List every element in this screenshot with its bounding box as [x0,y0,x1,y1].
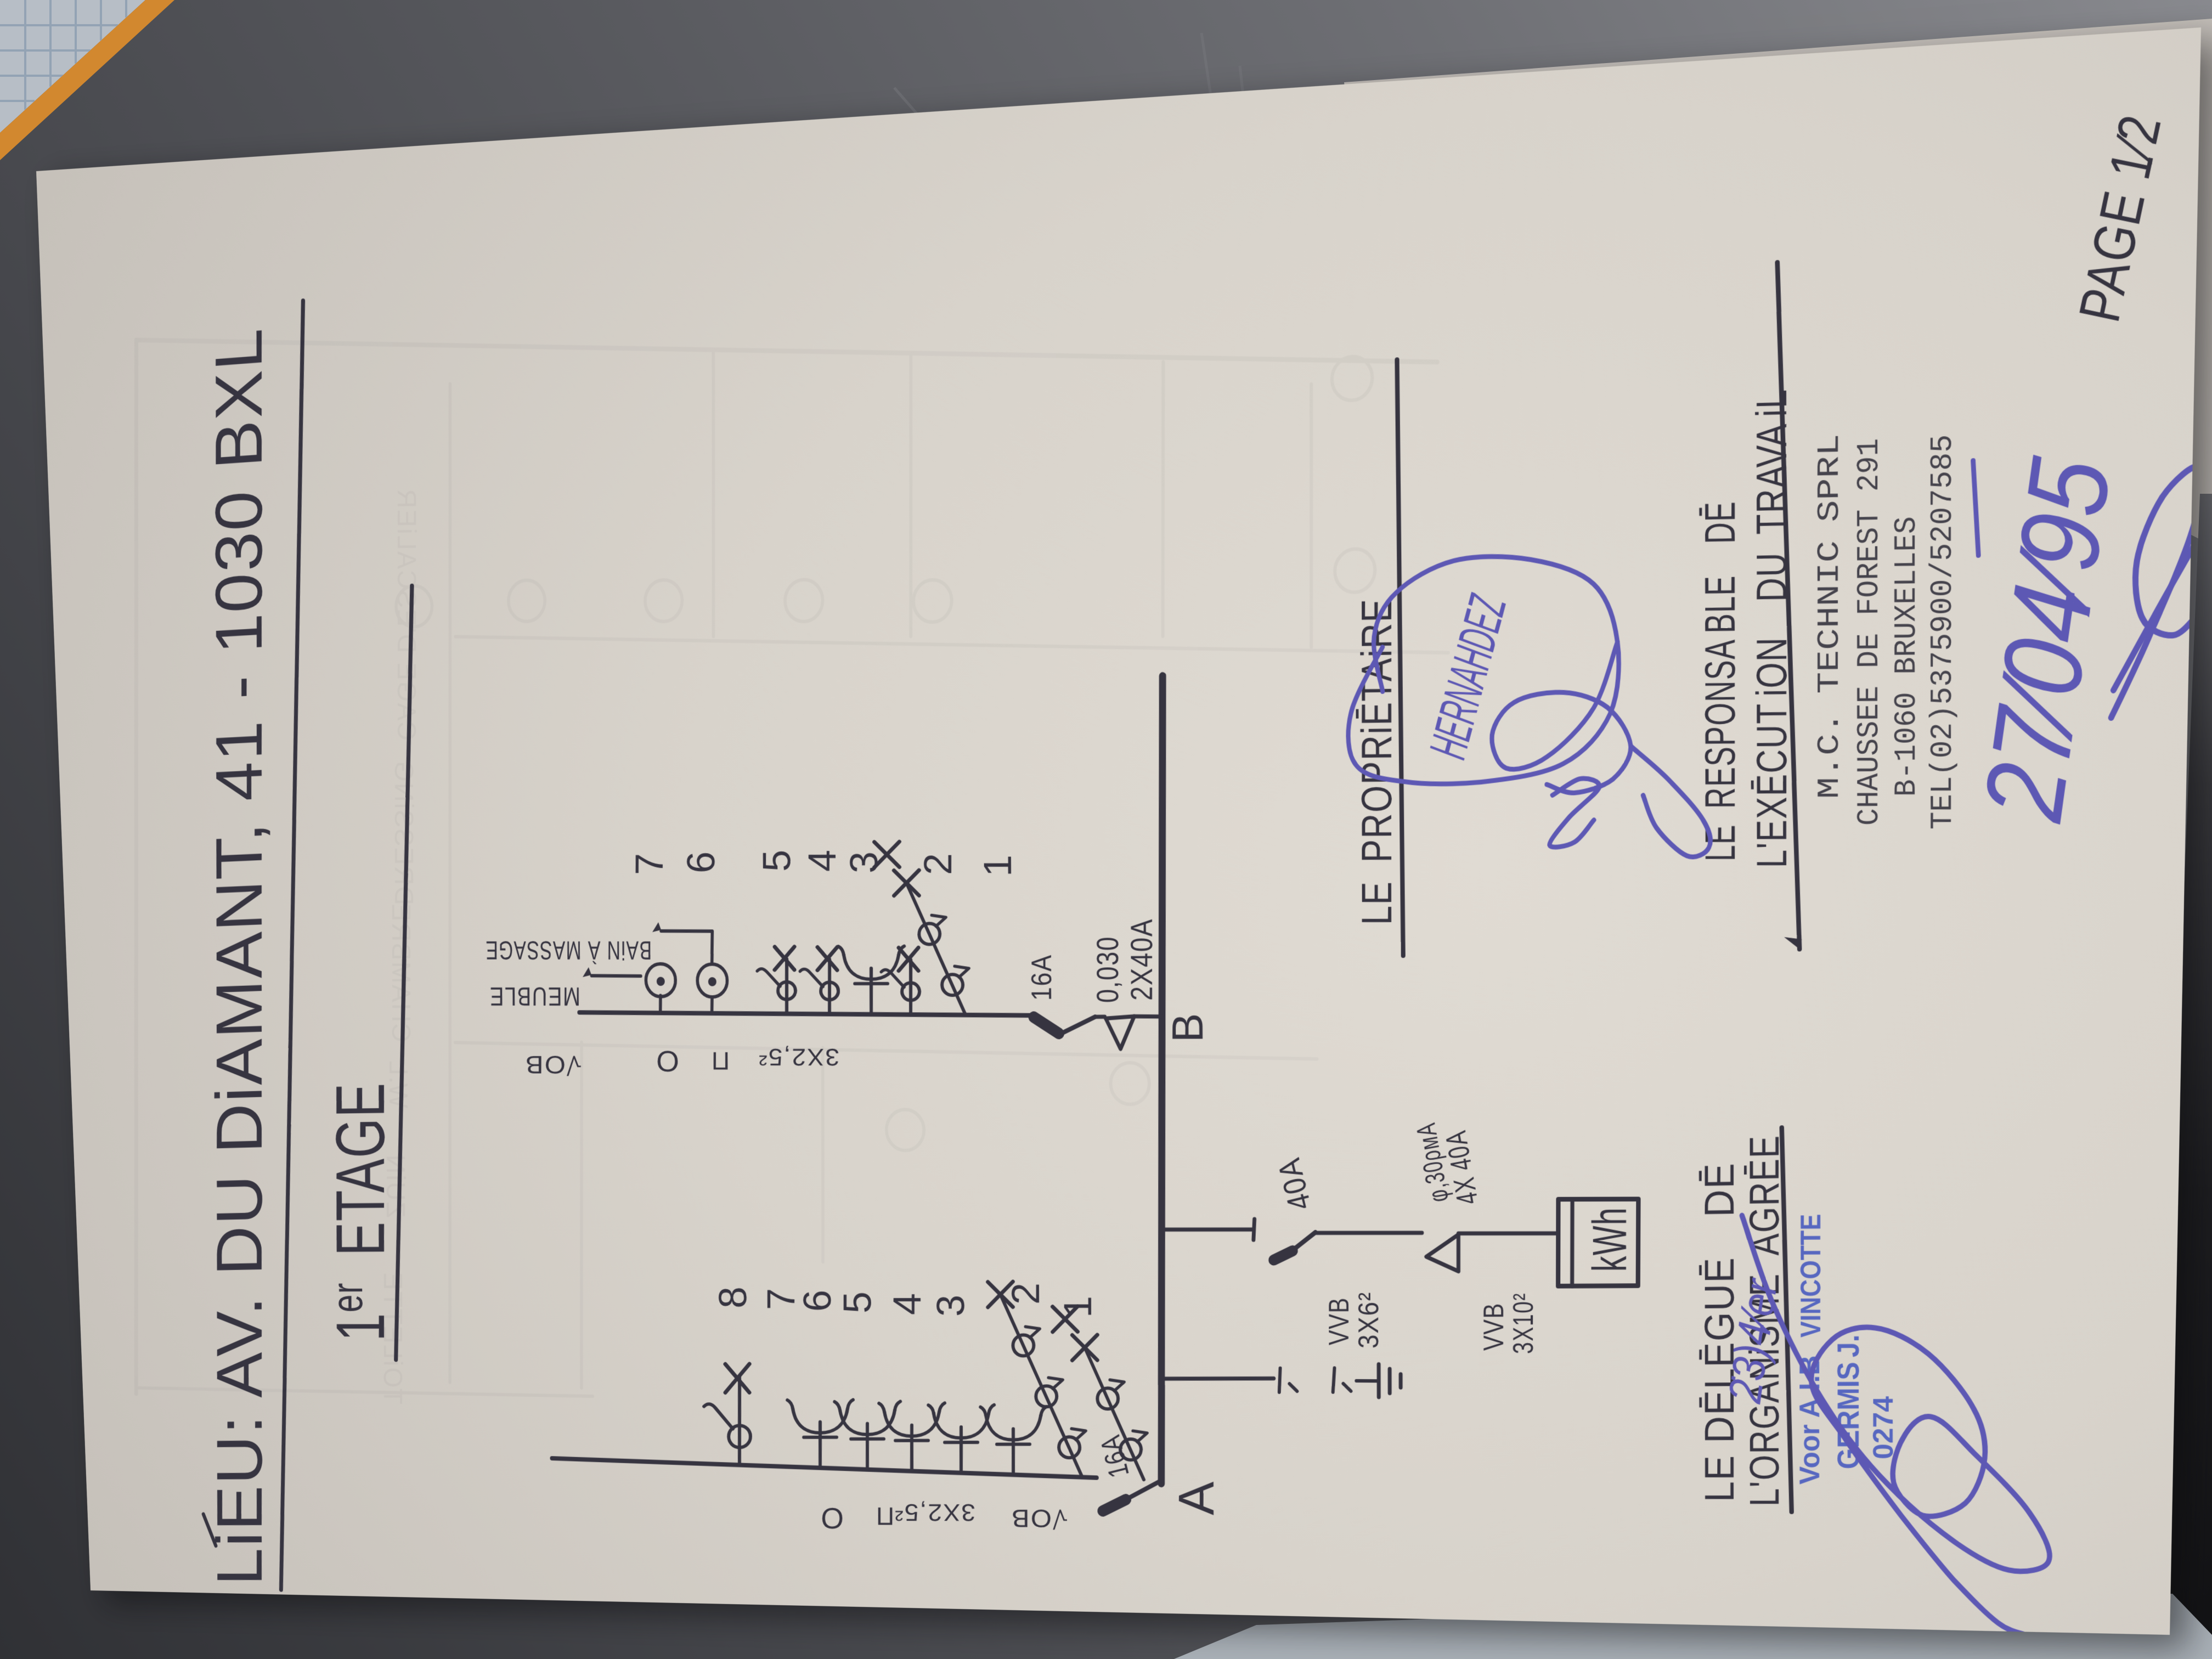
svg-text:TEL(02)5375900/5207585: TEL(02)5375900/5207585 [1926,434,1961,830]
svg-text:3X2,5²: 3X2,5² [894,1499,975,1526]
svg-text:PAGE 1⁄2: PAGE 1⁄2 [2067,109,2174,328]
svg-text:6: 6 [679,850,723,873]
svg-text:2: 2 [1005,1282,1048,1305]
svg-text:4: 4 [885,1292,929,1315]
svg-text:HERNAHDEZ: HERNAHDEZ [1418,589,1517,764]
svg-text:LE PROPRiĒTAiRE: LE PROPRiĒTAiRE [1353,597,1401,925]
svg-text:2X40A: 2X40A [1124,918,1159,1001]
svg-text:DRESSiNG: DRESSiNG [390,760,419,905]
svg-text:W.L: W.L [384,1059,413,1108]
svg-text:Π: Π [710,1046,730,1074]
svg-text:0274: 0274 [1867,1396,1899,1459]
svg-text:O: O [655,1045,679,1077]
svg-text:LE RESPONSA BLE DĒ: LE RESPONSA BLE DĒ [1696,500,1745,861]
svg-text:A: A [1168,1481,1224,1515]
svg-text:BAiN À MASSAGE: BAiN À MASSAGE [485,935,652,965]
svg-text:3: 3 [929,1294,973,1317]
svg-text:MEUBLE: MEUBLE [489,982,580,1012]
svg-text:8: 8 [711,1285,755,1308]
svg-text:Π: Π [875,1502,894,1530]
svg-text:B-1060 BRUXELLES: B-1060 BRUXELLES [1890,516,1925,797]
svg-text:CHAMBRE: CHAMBRE [387,902,416,1042]
svg-text:1: 1 [1056,1295,1100,1318]
svg-text:VINCOTTE: VINCOTTE [1795,1214,1827,1338]
svg-text:3X10²: 3X10² [1507,1293,1539,1354]
svg-text:16A: 16A [1026,954,1058,1001]
svg-text:CHAUSSEE DE FOREST 291: CHAUSSEE DE FOREST 291 [1853,438,1887,826]
svg-text:√OB: √OB [1011,1504,1068,1532]
svg-text:CAGE D'ESCALiER: CAGE D'ESCALiER [392,488,421,741]
svg-text:6: 6 [796,1289,839,1312]
svg-text:GERMIS J.: GERMIS J. [1832,1334,1866,1469]
svg-text:B: B [1164,1012,1212,1042]
svg-text:M.C. TECHNIC SPRL: M.C. TECHNIC SPRL [1813,433,1848,799]
svg-text:7: 7 [628,852,672,875]
svg-text:27⁄04⁄95: 27⁄04⁄95 [1961,452,2135,828]
svg-text:0,030: 0,030 [1090,936,1125,1003]
svg-text:2: 2 [916,852,960,875]
svg-text:VVB: VVB [1477,1302,1509,1351]
svg-text:1: 1 [975,854,1019,877]
svg-text:4: 4 [800,849,844,872]
svg-text:√OB: √OB [524,1051,582,1079]
svg-text:TOiLETTE: TOiLETTE [378,1271,408,1404]
svg-text:3X6²: 3X6² [1353,1291,1385,1348]
svg-text:O: O [820,1502,844,1534]
svg-text:3: 3 [842,850,886,873]
svg-text:40A: 40A [1272,1154,1318,1214]
svg-text:5: 5 [755,849,799,872]
svg-text:ZUiN: ZUiN [381,1154,410,1218]
svg-text:VVB: VVB [1323,1297,1355,1345]
svg-text:5: 5 [836,1290,879,1313]
svg-text:LiEU: AV. DU DiAMANT, 41 - 103: LiEU: AV. DU DiAMANT, 41 - 1030 BXL [202,325,276,1585]
svg-text:kWh: kWh [1583,1207,1637,1272]
